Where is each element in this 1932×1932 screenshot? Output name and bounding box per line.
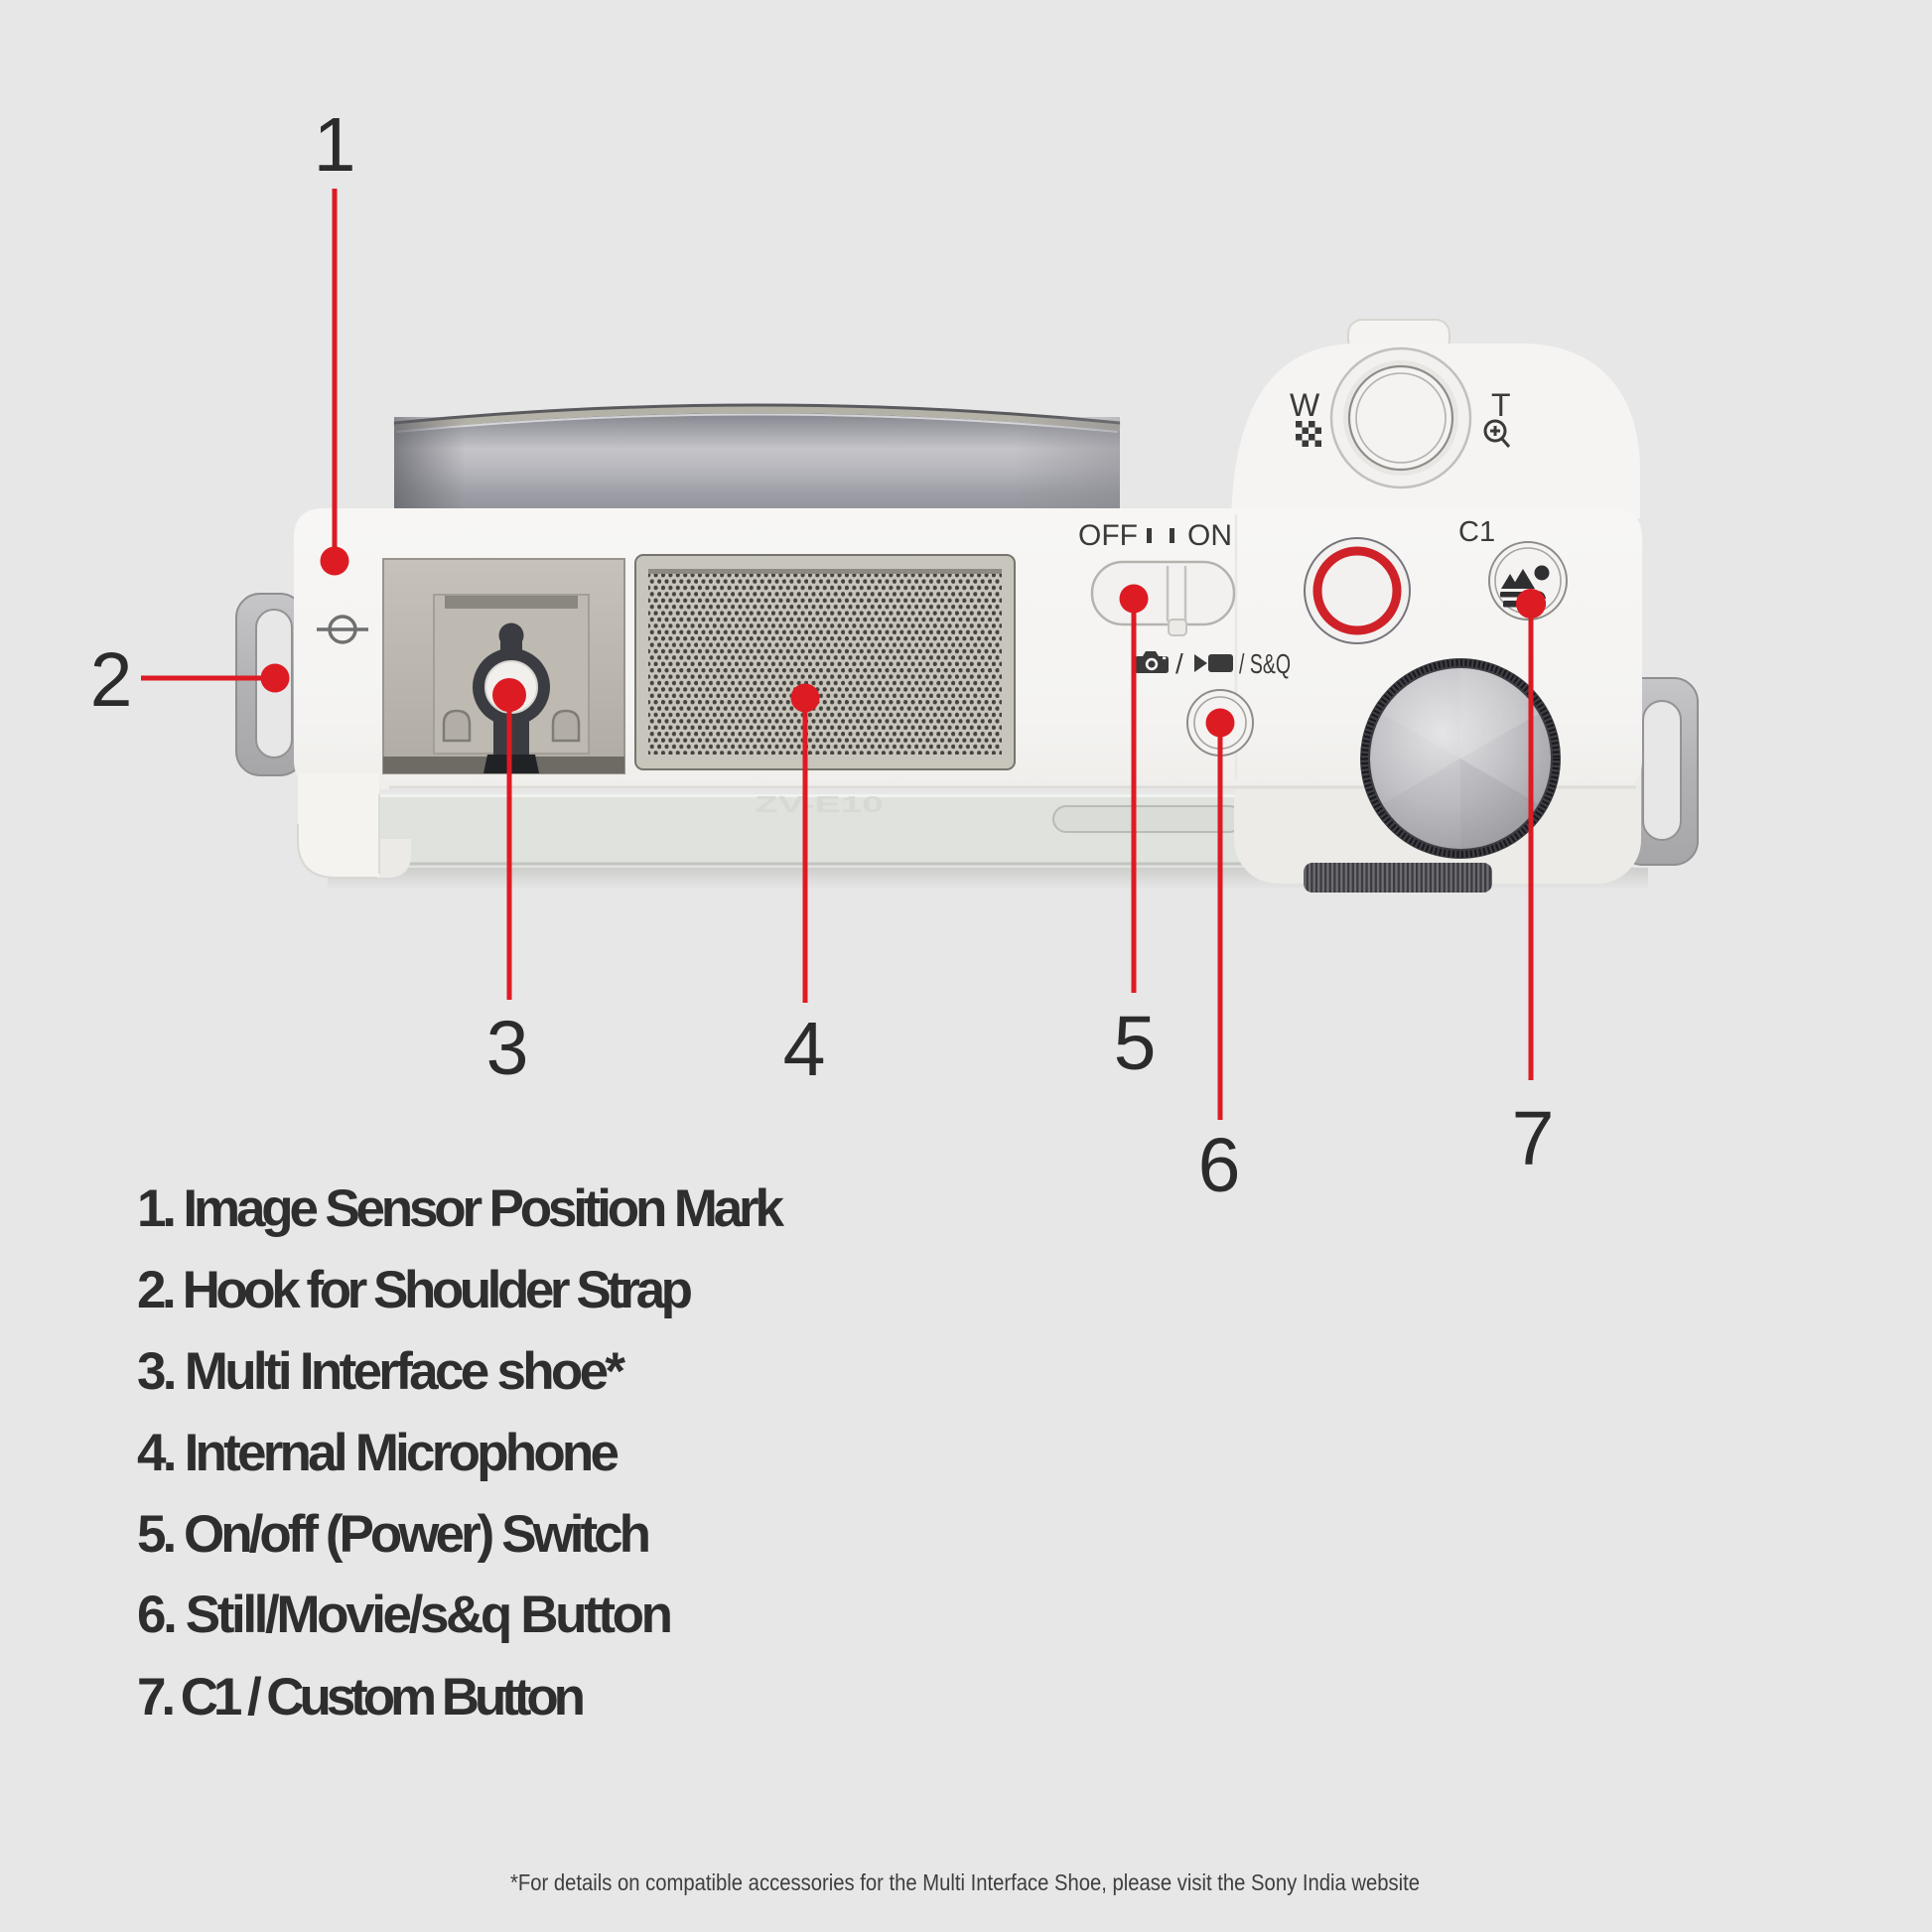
svg-text:1. Image Sensor Position Mark: 1. Image Sensor Position Mark [137,1179,785,1238]
svg-text:6. Still/Movie/s&q Button: 6. Still/Movie/s&q Button [137,1586,673,1644]
svg-text:*For details on compatible acc: *For details on compatible accessories f… [510,1869,1420,1895]
svg-text:/ S&Q: / S&Q [1239,648,1291,679]
svg-text:ON: ON [1187,519,1232,552]
svg-text:5: 5 [1114,1001,1157,1086]
svg-text:OFF: OFF [1078,519,1138,552]
svg-text:4: 4 [783,1007,826,1092]
svg-text:2: 2 [90,637,133,723]
svg-text:5. On/off (Power) Switch: 5. On/off (Power) Switch [137,1505,651,1564]
svg-text:C1: C1 [1458,516,1495,548]
svg-text:1: 1 [314,102,356,188]
svg-text:W: W [1290,387,1320,423]
svg-text:T: T [1491,387,1511,423]
svg-text:/: / [1175,648,1183,679]
svg-text:7. C1 / Custom Button: 7. C1 / Custom Button [137,1668,586,1726]
svg-text:4. Internal Microphone: 4. Internal Microphone [137,1424,620,1482]
svg-text:3. Multi Interface shoe*: 3. Multi Interface shoe* [137,1342,625,1401]
svg-text:ZV-E10: ZV-E10 [755,791,884,817]
svg-text:7: 7 [1512,1096,1555,1181]
svg-text:2. Hook for Shoulder Strap: 2. Hook for Shoulder Strap [137,1261,693,1319]
svg-text:6: 6 [1198,1123,1241,1208]
svg-text:3: 3 [486,1006,529,1091]
